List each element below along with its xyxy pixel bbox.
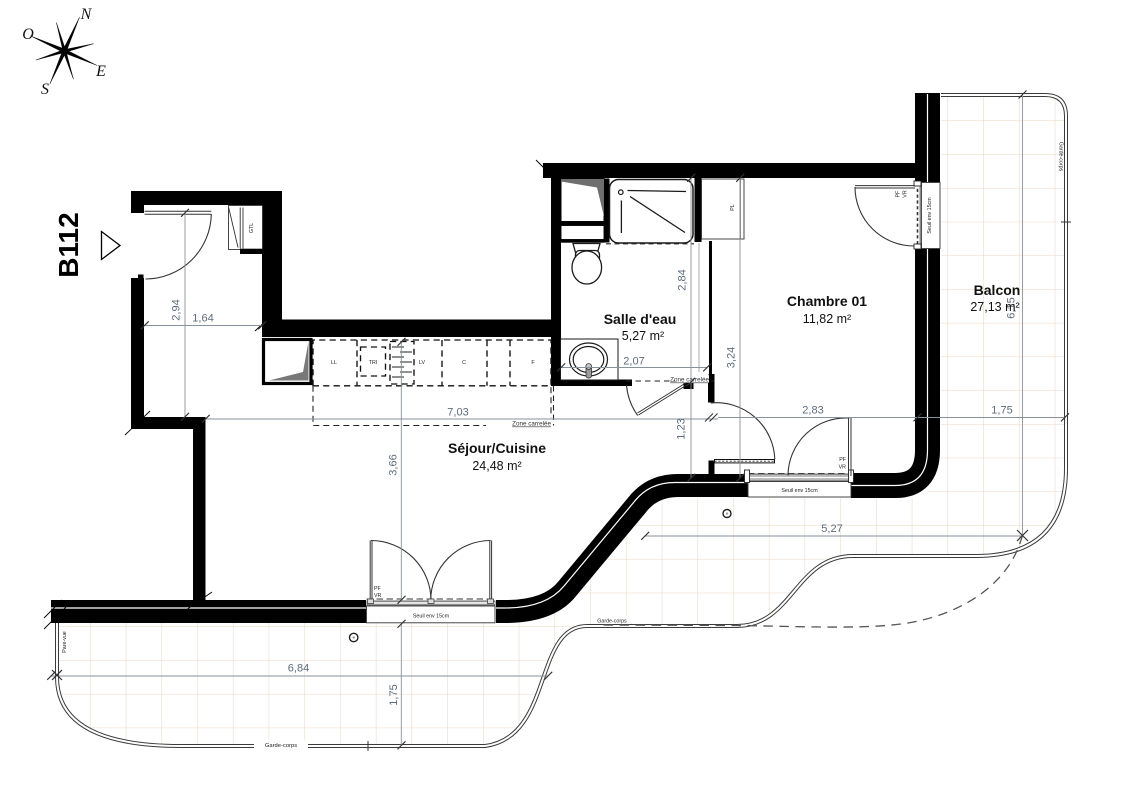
- svg-text:Salle d'eau: Salle d'eau: [604, 311, 677, 327]
- svg-text:2,83: 2,83: [802, 405, 823, 417]
- svg-text:TRI: TRI: [369, 360, 378, 366]
- svg-text:S: S: [41, 81, 49, 98]
- svg-text:PL: PL: [730, 204, 736, 211]
- svg-text:GTL: GTL: [249, 223, 255, 233]
- svg-text:PF: PF: [896, 190, 902, 198]
- svg-text:1,75: 1,75: [388, 684, 400, 705]
- svg-text:Pare-vue: Pare-vue: [62, 631, 68, 653]
- svg-text:VR: VR: [374, 593, 382, 599]
- svg-text:Garde-corps: Garde-corps: [597, 618, 627, 624]
- svg-text:6,84: 6,84: [288, 663, 309, 675]
- svg-text:2,84: 2,84: [677, 269, 689, 290]
- svg-text:PF: PF: [374, 586, 382, 592]
- svg-text:Garde-corps: Garde-corps: [265, 743, 297, 749]
- svg-text:Séjour/Cuisine: Séjour/Cuisine: [448, 440, 546, 456]
- svg-text:1,64: 1,64: [192, 313, 213, 325]
- svg-text:Zone carrelée: Zone carrelée: [512, 421, 551, 428]
- svg-text:3,66: 3,66: [388, 454, 400, 475]
- svg-text:11,82 m²: 11,82 m²: [803, 312, 851, 326]
- svg-text:E: E: [95, 63, 106, 80]
- svg-text:5,27: 5,27: [821, 523, 842, 535]
- svg-text:VR: VR: [839, 465, 847, 471]
- svg-text:Chambre 01: Chambre 01: [787, 293, 867, 309]
- svg-text:5,27 m²: 5,27 m²: [622, 329, 664, 343]
- svg-text:LV: LV: [419, 360, 426, 366]
- svg-text:Seuil env 15cm: Seuil env 15cm: [927, 197, 933, 234]
- svg-text:Seuil env 15cm: Seuil env 15cm: [413, 614, 450, 620]
- svg-text:7,03: 7,03: [447, 407, 468, 419]
- svg-text:Balcon: Balcon: [974, 282, 1021, 298]
- svg-text:PF: PF: [839, 457, 847, 463]
- svg-text:O: O: [22, 26, 34, 43]
- svg-text:27,13 m²: 27,13 m²: [970, 300, 1019, 314]
- svg-text:VR: VR: [903, 190, 909, 198]
- svg-text:Garde-corps: Garde-corps: [1058, 142, 1064, 172]
- svg-text:LL: LL: [331, 360, 337, 366]
- svg-text:Seuil env 15cm: Seuil env 15cm: [781, 488, 818, 494]
- svg-text:24,48 m²: 24,48 m²: [472, 459, 521, 473]
- svg-text:N: N: [80, 6, 93, 23]
- svg-text:2,94: 2,94: [171, 299, 183, 320]
- svg-text:1,75: 1,75: [991, 405, 1012, 417]
- svg-text:1,23: 1,23: [676, 418, 688, 439]
- svg-text:C: C: [462, 360, 466, 366]
- svg-text:B112: B112: [53, 212, 84, 277]
- svg-text:3,24: 3,24: [726, 347, 738, 368]
- svg-text:2,07: 2,07: [623, 356, 644, 368]
